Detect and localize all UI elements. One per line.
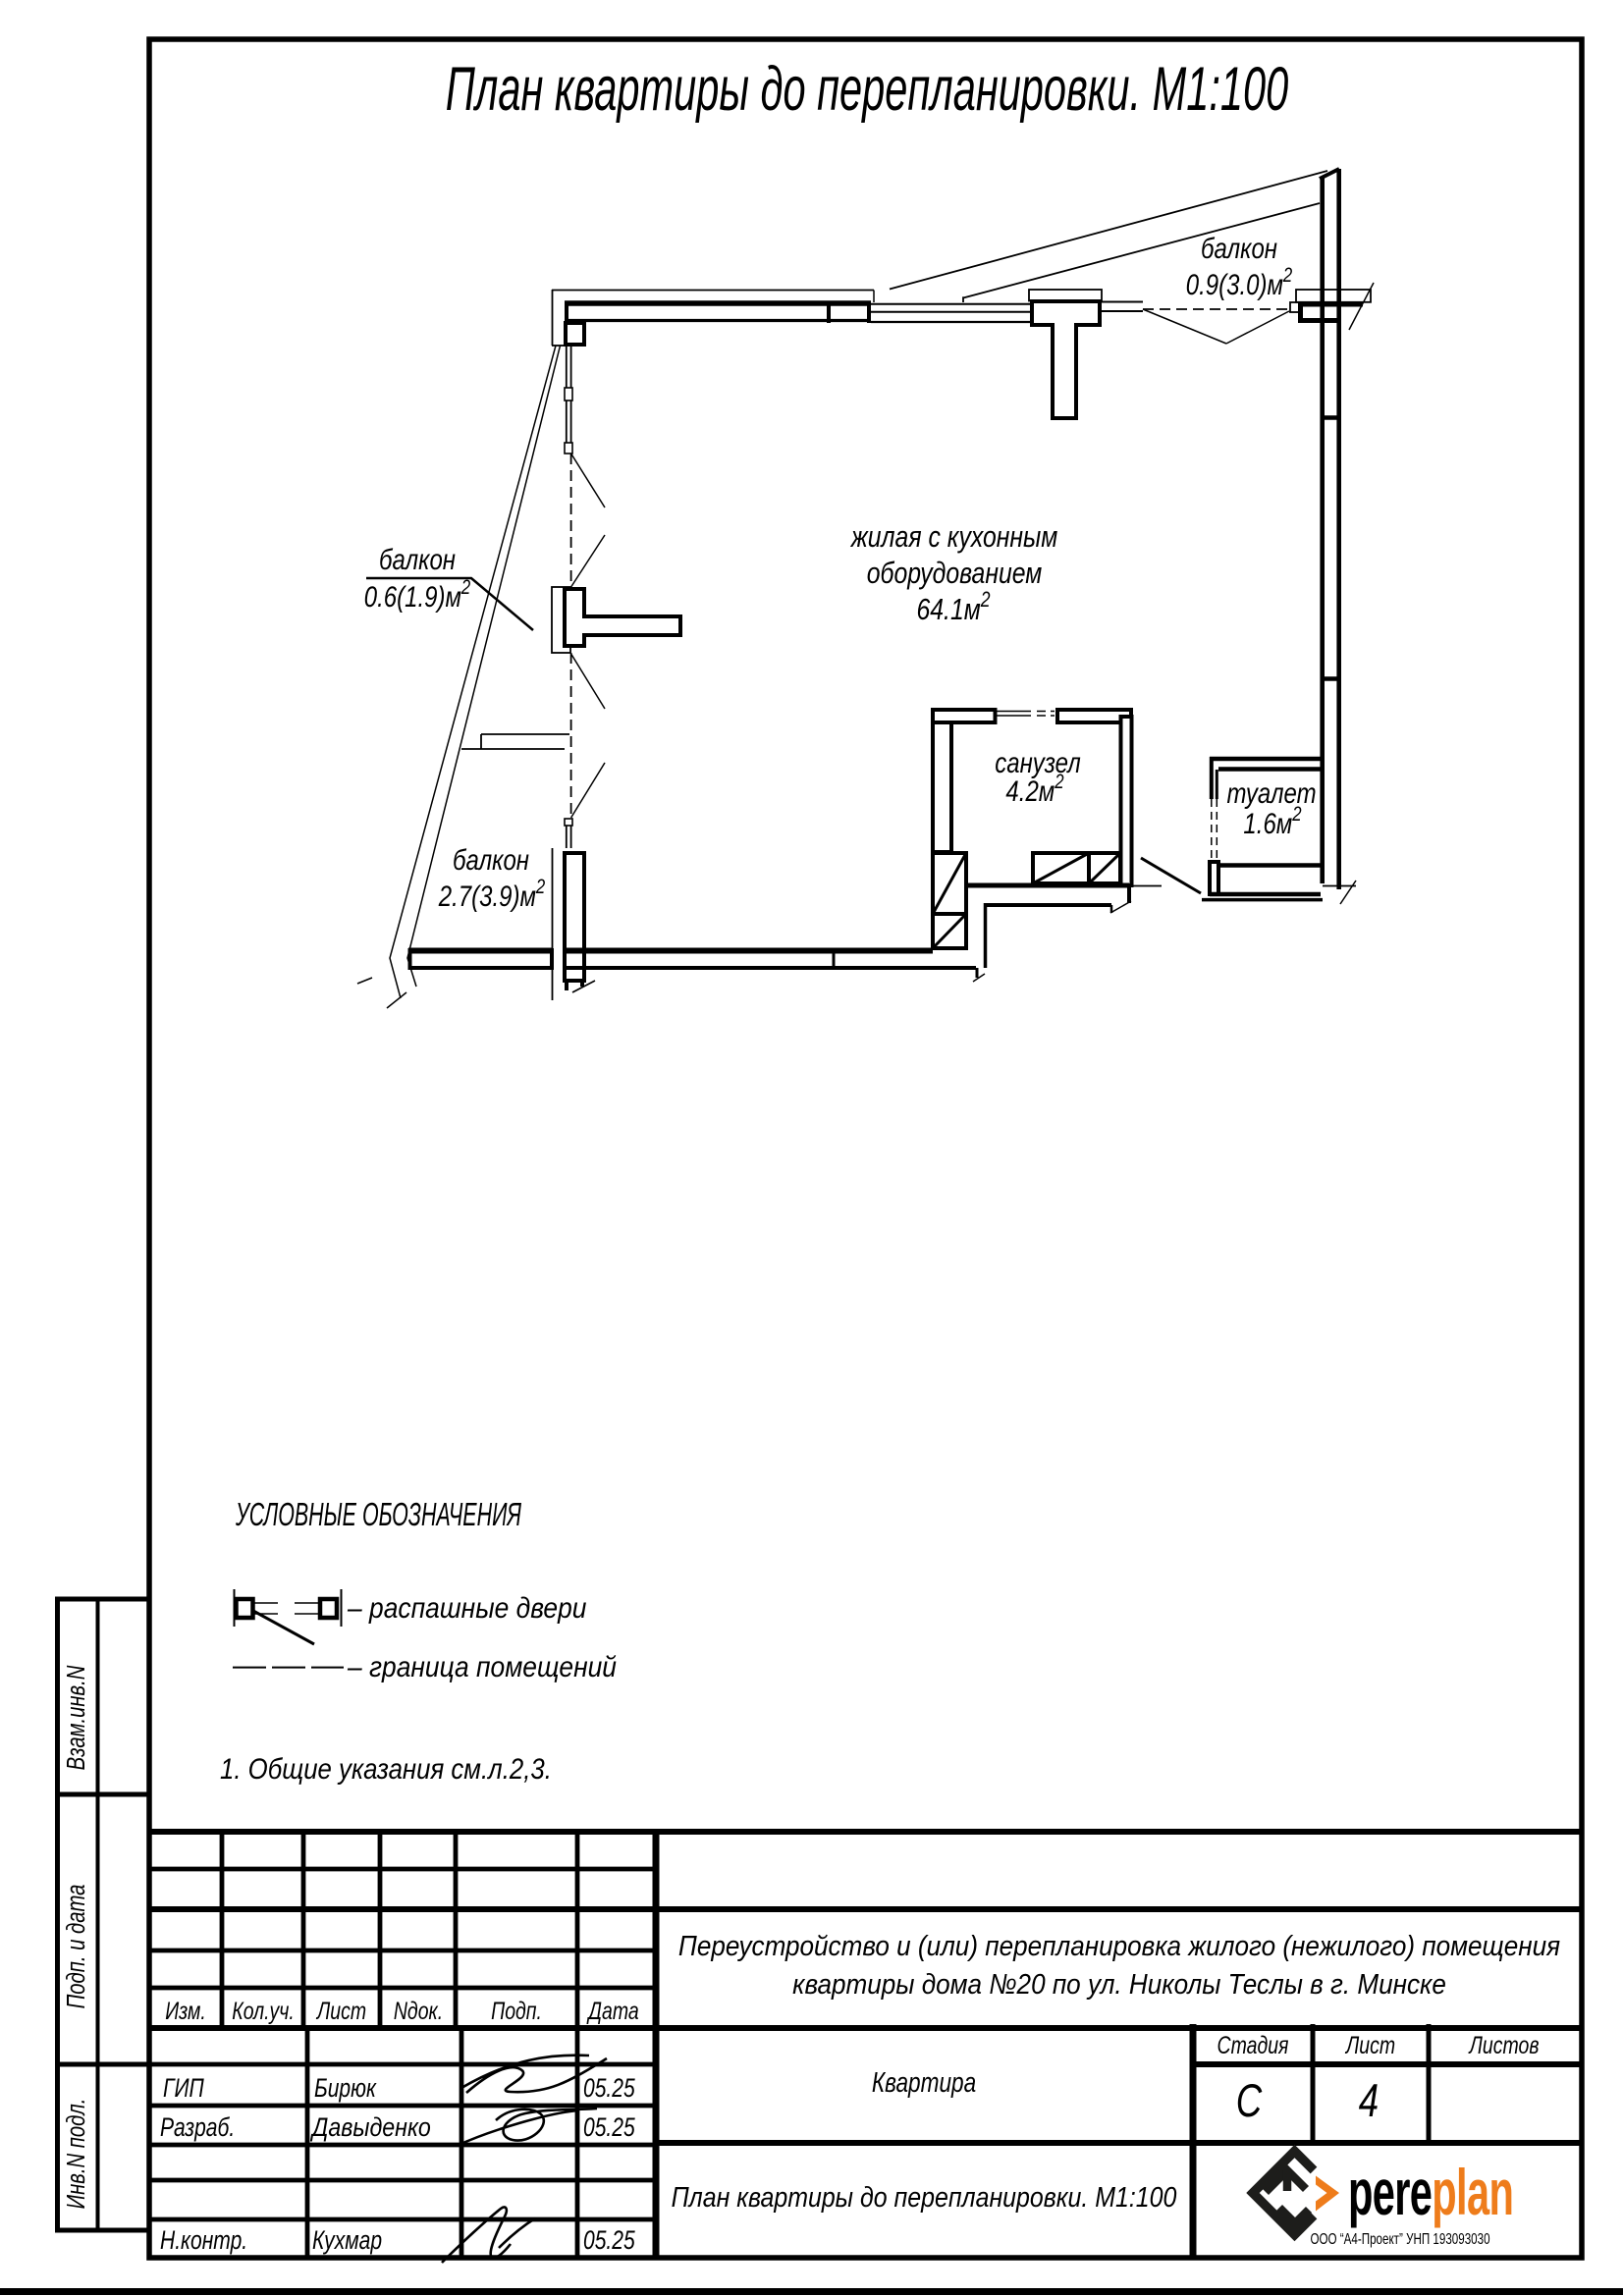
svg-text:Кол.уч.: Кол.уч.: [232, 1998, 295, 2025]
svg-text:План квартиры до перепланировк: План квартиры до перепланировки. М1:100: [446, 56, 1289, 125]
svg-text:туалет: туалет: [1226, 775, 1316, 809]
svg-text:квартиры дома №20 по ул. Никол: квартиры дома №20 по ул. Николы Теслы в …: [792, 1968, 1446, 2001]
svg-text:64.1м2: 64.1м2: [916, 588, 990, 625]
svg-text:Н.контр.: Н.контр.: [160, 2226, 247, 2256]
svg-text:Изм.: Изм.: [165, 1998, 206, 2025]
svg-text:– граница помещений: – граница помещений: [347, 1649, 617, 1682]
svg-text:05.25: 05.25: [583, 2074, 635, 2104]
svg-text:балкон: балкон: [379, 542, 456, 575]
svg-text:05.25: 05.25: [583, 2113, 635, 2143]
svg-text:балкон: балкон: [1201, 231, 1277, 264]
svg-text:Дата: Дата: [586, 1998, 639, 2025]
svg-text:2.7(3.9)м2: 2.7(3.9)м2: [438, 876, 546, 912]
svg-text:Листов: Листов: [1468, 2032, 1540, 2059]
svg-text:pereplan: pereplan: [1348, 2156, 1513, 2228]
svg-text:0.6(1.9)м2: 0.6(1.9)м2: [364, 576, 471, 613]
svg-text:Инв.N подл.: Инв.N подл.: [62, 2099, 90, 2210]
svg-text:Кухмар: Кухмар: [312, 2226, 382, 2256]
svg-text:Стадия: Стадия: [1217, 2032, 1289, 2059]
svg-text:План квартиры до перепланировк: План квартиры до перепланировки. М1:100: [672, 2181, 1177, 2213]
svg-text:оборудованием: оборудованием: [867, 556, 1042, 589]
svg-text:4: 4: [1359, 2075, 1379, 2126]
svg-text:1. Общие указания см.л.2,3.: 1. Общие указания см.л.2,3.: [220, 1752, 552, 1785]
svg-text:– распашные двери: – распашные двери: [347, 1590, 587, 1624]
svg-text:Лист: Лист: [315, 1998, 366, 2025]
svg-text:Подп.: Подп.: [491, 1998, 542, 2025]
svg-text:Nдок.: Nдок.: [394, 1998, 443, 2025]
svg-text:Квартира: Квартира: [872, 2065, 976, 2098]
svg-text:05.25: 05.25: [583, 2226, 635, 2256]
svg-text:Давыденко: Давыденко: [309, 2112, 431, 2142]
svg-text:жилая с кухонным: жилая с кухонным: [849, 519, 1057, 553]
svg-text:УСЛОВНЫЕ ОБОЗНАЧЕНИЯ: УСЛОВНЫЕ ОБОЗНАЧЕНИЯ: [235, 1496, 521, 1532]
svg-text:ГИП: ГИП: [163, 2074, 204, 2104]
svg-text:0.9(3.0)м2: 0.9(3.0)м2: [1186, 264, 1293, 300]
svg-text:Лист: Лист: [1344, 2032, 1395, 2059]
svg-text:Подп. и дата: Подп. и дата: [62, 1885, 90, 2009]
svg-text:С: С: [1236, 2075, 1263, 2126]
svg-text:Взам.инв.N: Взам.инв.N: [62, 1665, 90, 1770]
svg-text:балкон: балкон: [453, 842, 529, 876]
svg-text:Бирюк: Бирюк: [314, 2074, 377, 2104]
svg-text:Переустройство и (или) перепла: Переустройство и (или) перепланировка жи…: [678, 1930, 1560, 1962]
svg-text:Разраб.: Разраб.: [160, 2113, 235, 2143]
svg-text:ООО “А4-Проект” УНП 193093030: ООО “А4-Проект” УНП 193093030: [1310, 2230, 1489, 2247]
